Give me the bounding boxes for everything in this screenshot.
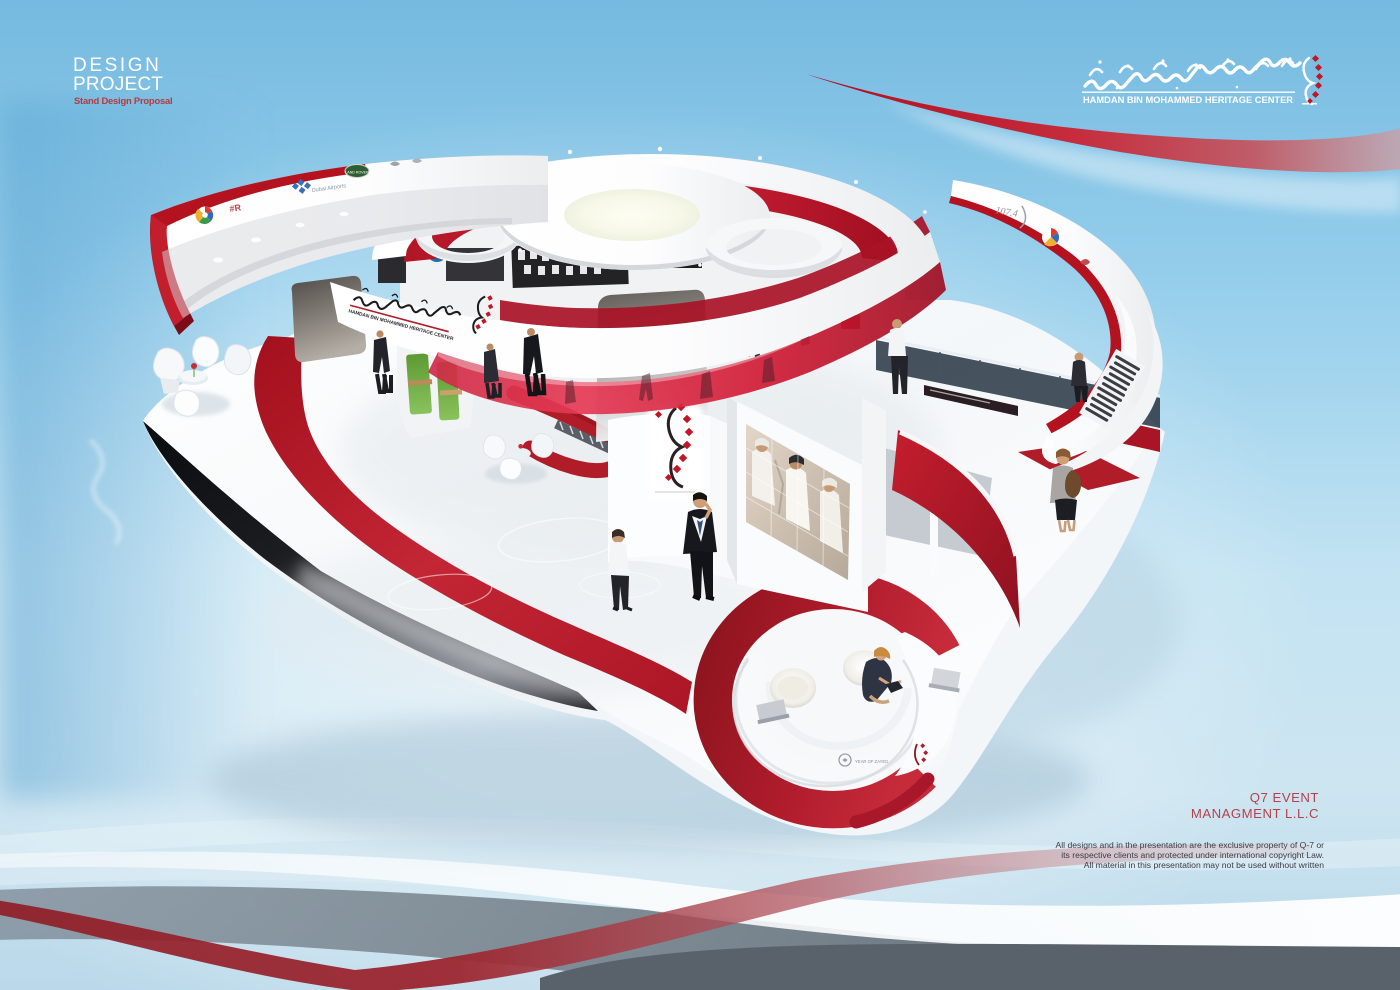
- svg-text:All designs and in the present: All designs and in the presentation are …: [1056, 840, 1325, 850]
- svg-text:Stand Design Proposal: Stand Design Proposal: [74, 95, 172, 106]
- svg-text:LAND ROVER: LAND ROVER: [345, 171, 369, 175]
- svg-text:YEAR OF ZAYED: YEAR OF ZAYED: [855, 759, 888, 764]
- svg-text:MANAGMENT L.L.C: MANAGMENT L.L.C: [1191, 806, 1319, 821]
- svg-text:HAMDAN BIN MOHAMMED HERITAGE C: HAMDAN BIN MOHAMMED HERITAGE CENTER: [1083, 95, 1293, 105]
- svg-text:DESIGN: DESIGN: [73, 55, 161, 76]
- svg-text:All material in this presentat: All material in this presentation may no…: [1084, 860, 1324, 870]
- svg-text:Q7 EVENT: Q7 EVENT: [1250, 790, 1319, 805]
- svg-text:#R: #R: [229, 202, 242, 214]
- svg-text:PROJECT: PROJECT: [73, 74, 163, 95]
- svg-text:its respective clients and pro: its respective clients and protected und…: [1061, 850, 1324, 860]
